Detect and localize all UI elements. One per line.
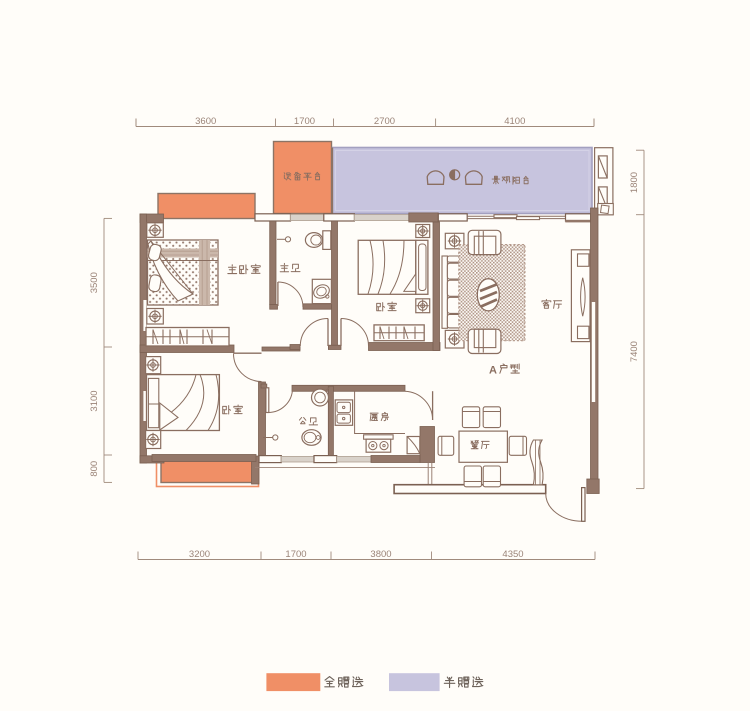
svg-text:4100: 4100 [504, 116, 525, 127]
svg-text:3600: 3600 [195, 116, 216, 127]
svg-text:A: A [489, 365, 497, 377]
svg-text:1700: 1700 [285, 549, 306, 560]
svg-text:3500: 3500 [89, 272, 100, 293]
svg-text:3100: 3100 [89, 390, 100, 411]
svg-text:7400: 7400 [629, 341, 640, 362]
svg-text:800: 800 [89, 461, 100, 477]
svg-text:1700: 1700 [294, 116, 315, 127]
svg-text:3800: 3800 [370, 549, 391, 560]
svg-text:1800: 1800 [629, 172, 640, 193]
svg-text:4350: 4350 [502, 549, 523, 560]
svg-text:2700: 2700 [374, 116, 395, 127]
svg-text:3200: 3200 [189, 549, 210, 560]
